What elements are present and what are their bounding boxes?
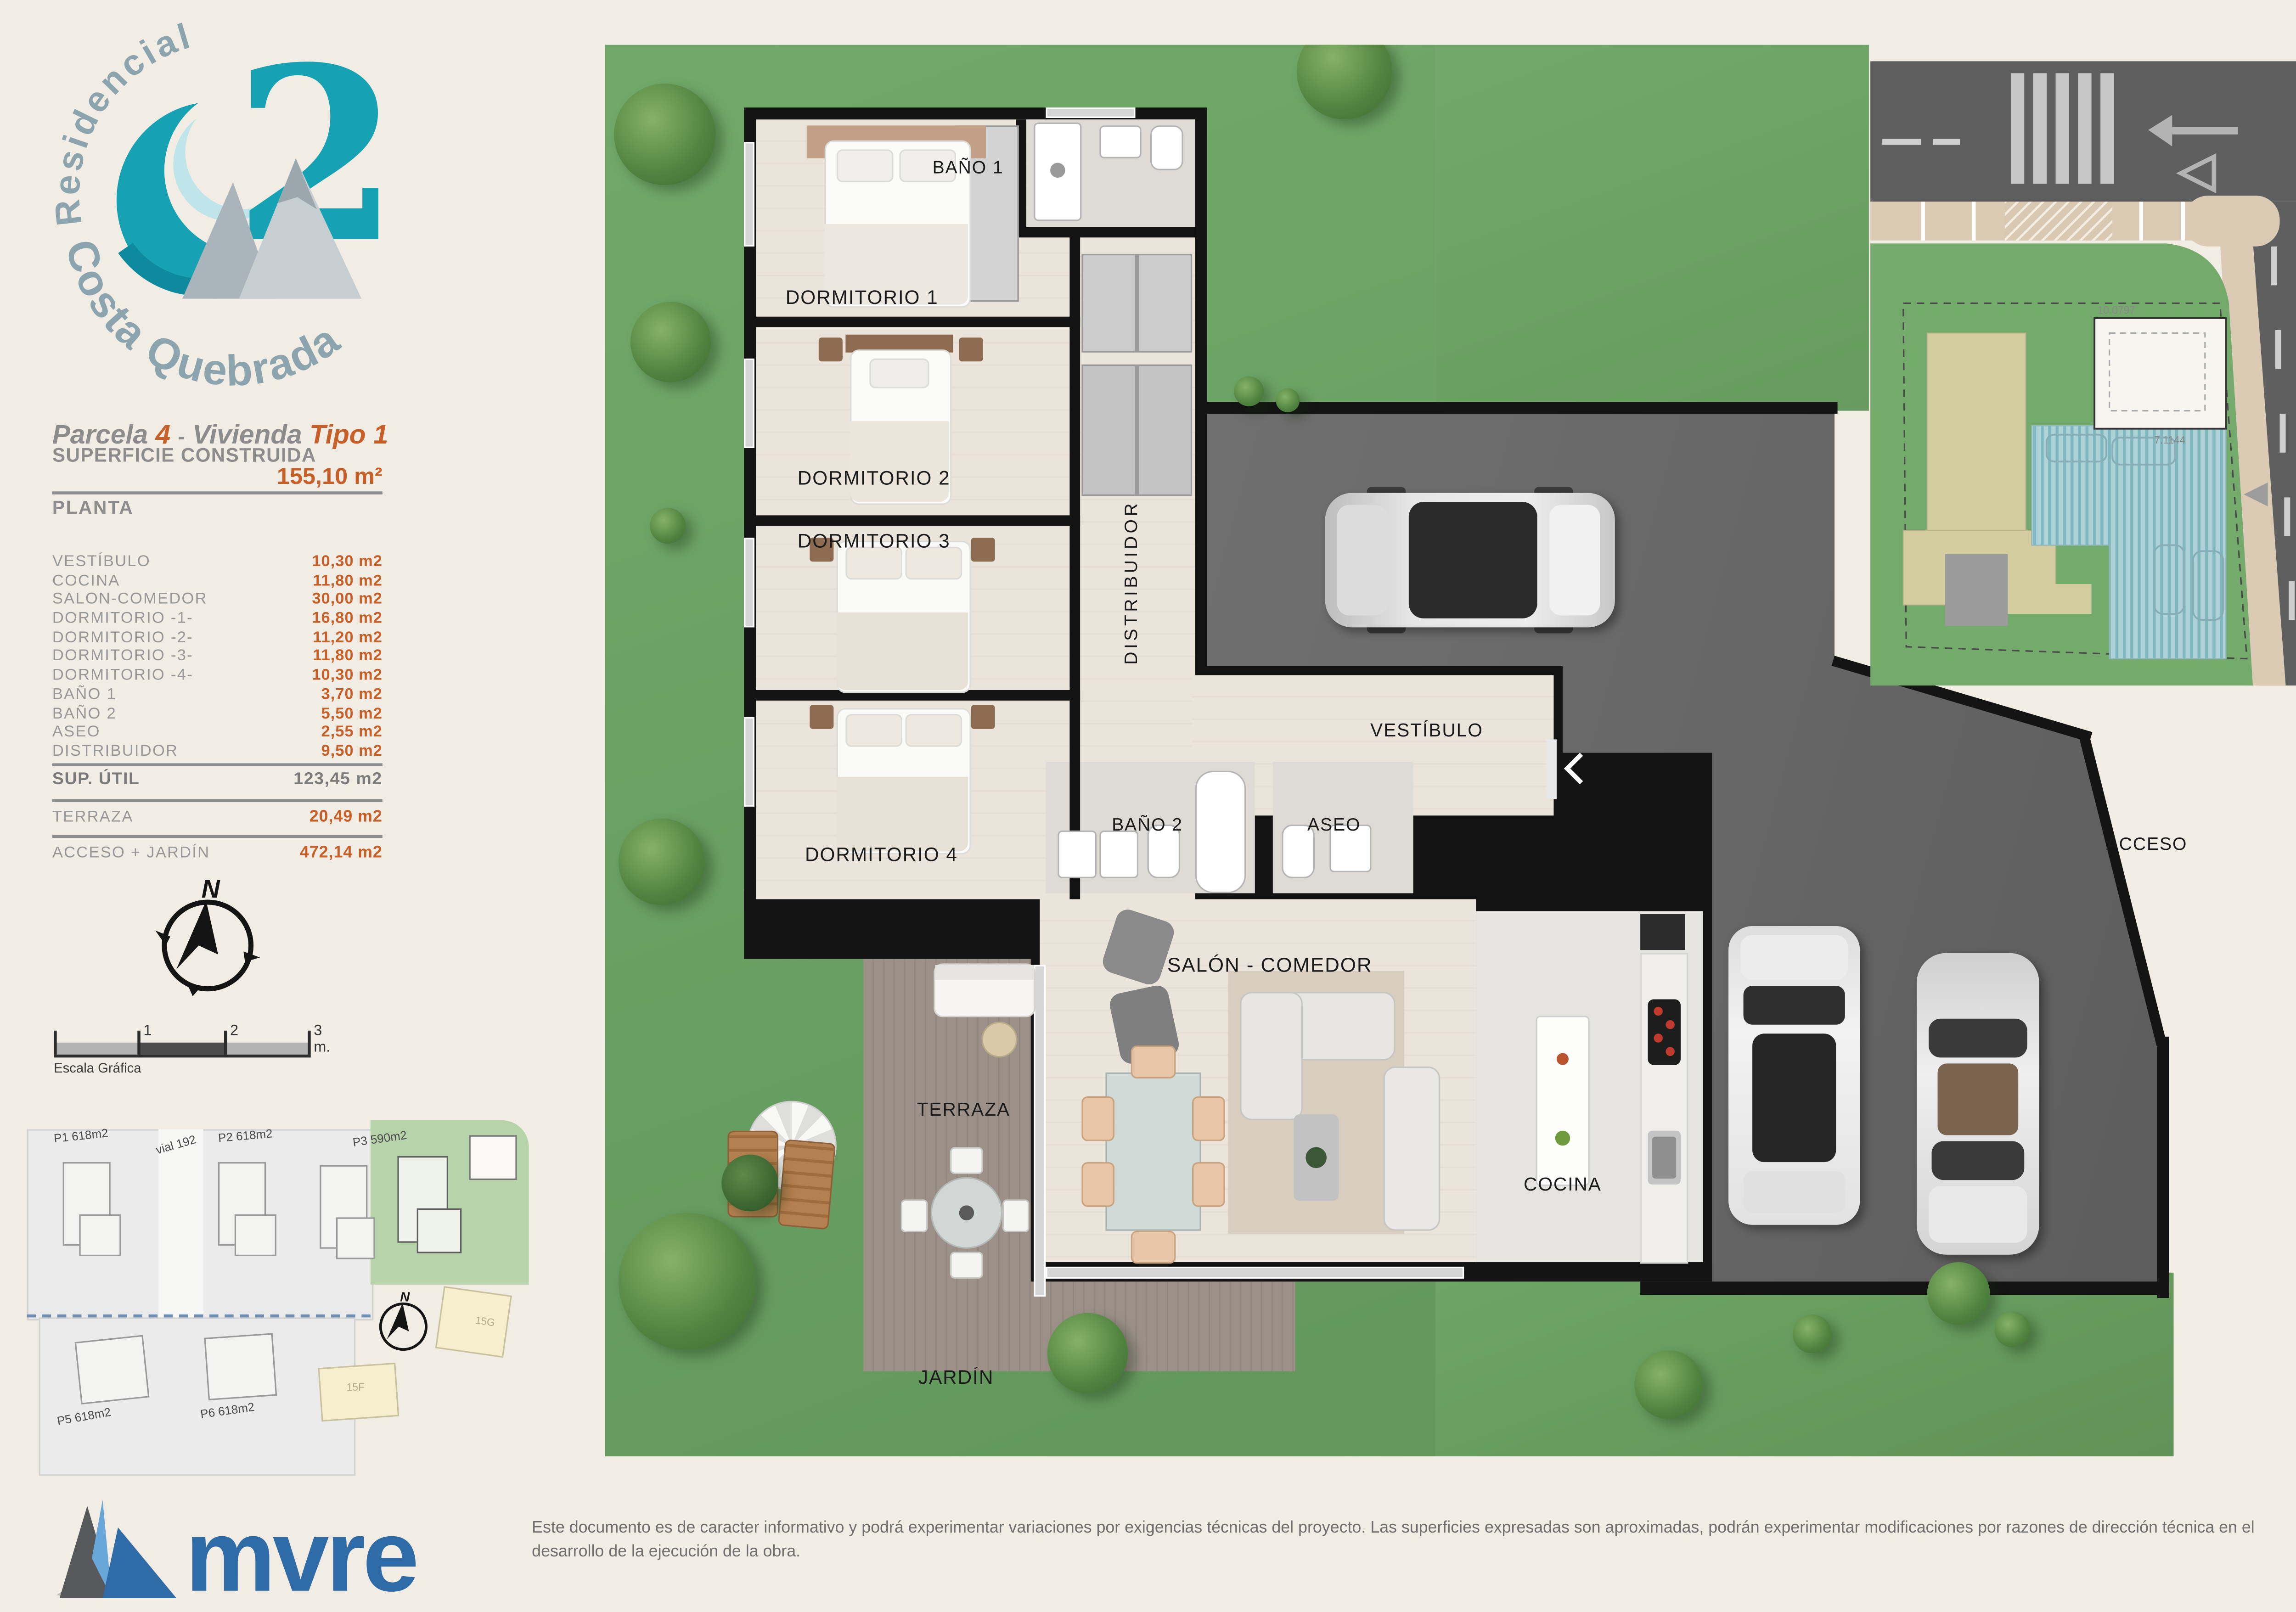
room-label: COCINA <box>52 572 120 590</box>
room-label-cocina: COCINA <box>1524 1174 1602 1195</box>
scale-label-3: 3 m. <box>314 1023 338 1056</box>
car-parked-sedan <box>1917 953 2039 1255</box>
outdoor-chair <box>901 1199 928 1232</box>
room-label-dorm4: DORMITORIO 4 <box>805 843 958 865</box>
window <box>1046 107 1135 118</box>
sup-util-label: SUP. ÚTIL <box>52 771 140 789</box>
acceso-jardin-value: 472,14 m2 <box>300 844 383 862</box>
window <box>744 538 754 627</box>
sofa-chaise <box>1240 992 1303 1120</box>
costa-quebrada-logo: 2 Residencial Costa Quebrada <box>39 6 416 388</box>
glass-wall-south <box>1046 1267 1464 1279</box>
sink <box>1099 831 1138 878</box>
terraza-row: TERRAZA 20,49 m2 <box>52 808 383 826</box>
pillow <box>869 359 929 388</box>
sun-lounger <box>777 1139 836 1230</box>
room-label: DORMITORIO -1- <box>52 610 193 628</box>
divider <box>52 799 383 803</box>
blanket <box>850 421 949 502</box>
closet <box>1081 365 1192 496</box>
tipo-label: Tipo <box>310 420 366 449</box>
inset-pool-area <box>2094 318 2226 429</box>
sidewalk-joint <box>2181 202 2185 241</box>
car-windshield <box>1744 986 1845 1025</box>
graphic-scale: 1 2 3 m. Escala Gráfica <box>54 1025 338 1078</box>
burner <box>1666 1047 1675 1056</box>
scale-label-2: 2 <box>230 1023 238 1040</box>
plate <box>1555 1131 1570 1146</box>
car-windshield <box>1929 1019 2027 1058</box>
loveseat-back <box>935 965 1034 980</box>
room-value: 11,20 m2 <box>313 629 383 646</box>
room-value: 10,30 m2 <box>312 666 382 684</box>
car-rear-glass <box>1932 1141 2025 1180</box>
vial-strip <box>158 1129 203 1317</box>
pillow <box>845 714 902 747</box>
coffee-table <box>1294 1114 1339 1201</box>
car-roof <box>1938 1063 2019 1135</box>
pool-inset <box>469 1135 517 1180</box>
sink <box>1099 125 1141 158</box>
room-label-dorm1: DORMITORIO 1 <box>786 286 939 309</box>
car-parked-top <box>1325 493 1615 628</box>
site-plan-compass: N <box>373 1287 433 1356</box>
burner <box>1654 1007 1663 1016</box>
sink <box>1058 831 1097 878</box>
sink-basin <box>1652 1137 1676 1179</box>
bush <box>1234 376 1264 406</box>
tipo-value: 1 <box>373 420 388 449</box>
room-label: VESTÍBULO <box>52 553 151 571</box>
outdoor-chair <box>1002 1199 1030 1232</box>
location-inset-map: 10.0797 7.1144 <box>1862 52 2296 685</box>
room-label: ASEO <box>52 723 101 741</box>
room-label-distribuidor: DISTRIBUIDOR <box>1120 500 1142 665</box>
closet <box>1081 254 1192 353</box>
blanket <box>837 612 968 690</box>
room-value: 10,30 m2 <box>312 553 382 571</box>
tree <box>1927 1262 1990 1325</box>
boundary-wall <box>2157 1037 2169 1298</box>
room-label-bano1: BAÑO 1 <box>933 157 1004 178</box>
window <box>744 359 754 448</box>
bush <box>650 508 686 544</box>
site-plan-minimap: 15G 15F N P1 618m2 vial 192 P2 618m2 P3 … <box>27 1111 547 1478</box>
kitchen-sink <box>1648 1131 1681 1185</box>
surface-value: 155,10 m² <box>52 465 383 492</box>
mvre-logo-text: mvre <box>185 1505 416 1607</box>
label-15f: 15F <box>347 1383 365 1394</box>
car-trunk <box>1744 1171 1845 1213</box>
scale-tick <box>54 1031 57 1055</box>
paved-apron <box>2005 202 2112 241</box>
inset-house-footprint <box>1927 333 2026 551</box>
room-label: SALON-COMEDOR <box>52 590 208 608</box>
outdoor-chair <box>950 1147 983 1174</box>
inset-dimension-bottom: 7.1144 <box>2154 434 2185 446</box>
drain <box>1050 163 1065 178</box>
room-value: 16,80 m2 <box>312 610 382 628</box>
area-label-acceso: ACCESO <box>2106 833 2188 854</box>
kitchen-cabinet <box>1640 914 1685 950</box>
room-value: 11,80 m2 <box>313 572 383 590</box>
room-label: BAÑO 2 <box>52 704 117 722</box>
mvre-mountain-blue <box>102 1528 176 1598</box>
room-label-dorm3: DORMITORIO 3 <box>798 529 951 552</box>
sidewalk-joint <box>1972 202 1975 241</box>
scale-tick <box>224 1031 227 1055</box>
house-footprint <box>74 1335 149 1405</box>
dining-chair <box>1192 1096 1225 1141</box>
house-south-wall <box>744 890 1049 959</box>
table-row: DORMITORIO -4-10,30 m2 <box>52 666 383 685</box>
brochure-page: 2 Residencial Costa Quebrada Parcela 4 -… <box>0 0 2296 1612</box>
scale-label-1: 1 <box>143 1023 152 1040</box>
car-hood <box>1740 935 1848 980</box>
scale-caption: Escala Gráfica <box>54 1061 141 1076</box>
terraza-label: TERRAZA <box>52 808 134 826</box>
house-footprint-wing <box>417 1208 462 1253</box>
table-row: DORMITORIO -1-16,80 m2 <box>52 610 383 629</box>
outdoor-chair <box>950 1252 983 1279</box>
room-value: 9,50 m2 <box>321 742 383 760</box>
corridor-wall <box>1069 236 1080 899</box>
room-label-bano2: BAÑO 2 <box>1112 814 1183 835</box>
table-row: ASEO2,55 m2 <box>52 723 383 742</box>
room-label-aseo: ASEO <box>1307 814 1361 835</box>
sidewalk-joint <box>1921 202 1925 241</box>
room-label-dorm2: DORMITORIO 2 <box>798 467 951 489</box>
pillow <box>905 714 962 747</box>
sup-util-row: SUP. ÚTIL 123,45 m2 <box>52 771 383 789</box>
divider <box>52 835 383 838</box>
car-hood <box>1549 505 1600 616</box>
nightstand <box>971 538 995 562</box>
plant <box>1306 1147 1327 1168</box>
boundary-wall <box>1640 1281 2169 1295</box>
tree <box>1634 1350 1703 1419</box>
pillow <box>837 149 894 182</box>
dining-chair <box>1081 1162 1114 1207</box>
house-footprint <box>320 1165 367 1249</box>
lane-dash <box>1933 139 1960 145</box>
nightstand <box>959 337 983 361</box>
neighbor-building-15g <box>435 1286 512 1358</box>
compass-n-label: N <box>400 1290 410 1305</box>
bush <box>1276 388 1300 412</box>
scale-bar-dark <box>139 1043 226 1055</box>
side-table <box>981 1022 1017 1057</box>
inset-patio <box>1945 554 2008 626</box>
tree <box>1047 1313 1128 1394</box>
garden-grass-top <box>1435 45 1868 411</box>
room-value: 2,55 m2 <box>321 723 383 741</box>
sidewalk-corner <box>2184 196 2279 247</box>
arrow-tail <box>2169 127 2238 135</box>
kitchen-counter <box>1640 953 1688 1264</box>
tree <box>1793 1314 1832 1354</box>
bed-dorm4 <box>837 702 968 851</box>
house-footprint <box>63 1162 111 1246</box>
interior-wall <box>1016 227 1195 238</box>
room-label-salon: SALÓN - COMEDOR <box>1167 954 1373 976</box>
house-footprint <box>204 1333 277 1400</box>
divider <box>52 763 383 766</box>
sofa <box>1384 1067 1441 1231</box>
table-row: BAÑO 25,50 m2 <box>52 704 383 723</box>
table-row: DORMITORIO -2-11,20 m2 <box>52 629 383 647</box>
table-row: BAÑO 13,70 m2 <box>52 685 383 704</box>
car-glass <box>1409 502 1537 618</box>
kitchen-island <box>1536 1016 1589 1186</box>
acceso-jardin-label: ACCESO + JARDÍN <box>52 844 210 862</box>
house-footprint-selected <box>397 1156 448 1243</box>
compass-n-label: N <box>202 875 220 903</box>
lane-dash <box>1882 139 1921 145</box>
house-footprint-wing <box>235 1214 276 1256</box>
planta-label: PLANTA <box>52 497 134 518</box>
sidewalk-joint <box>2139 202 2143 241</box>
room-value: 5,50 m2 <box>321 704 383 722</box>
outdoor-table <box>931 1177 1002 1249</box>
terraza-value: 20,49 m2 <box>310 808 383 826</box>
car-trunk <box>1337 505 1388 616</box>
shower-tray <box>1034 123 1081 221</box>
room-label-vestibulo: VESTÍBULO <box>1370 720 1483 741</box>
room-label-terraza: TERRAZA <box>917 1099 1010 1120</box>
table-row: SALON-COMEDOR30,00 m2 <box>52 590 383 609</box>
disclaimer-text: Este documento es de caracter informativ… <box>532 1517 2295 1565</box>
blanket <box>837 777 968 852</box>
surface-title: SUPERFICIE CONSTRUIDA <box>52 444 316 466</box>
house-footprint-wing <box>79 1214 121 1256</box>
room-value: 3,70 m2 <box>321 685 383 703</box>
room-label: DORMITORIO -4- <box>52 666 193 684</box>
mvre-logo-icon <box>52 1497 184 1598</box>
table-row: COCINA11,80 m2 <box>52 572 383 590</box>
nightstand <box>810 705 833 729</box>
table-row: DORMITORIO -3-11,80 m2 <box>52 647 383 666</box>
outdoor-loveseat <box>934 963 1035 1017</box>
bed-dorm3 <box>837 535 968 690</box>
room-label: DISTRIBUIDOR <box>52 742 178 760</box>
room-label: DORMITORIO -2- <box>52 629 193 646</box>
table-row: DISTRIBUIDOR9,50 m2 <box>52 742 383 761</box>
house-footprint-wing <box>336 1217 375 1259</box>
dining-table <box>1105 1073 1201 1231</box>
divider <box>52 491 383 494</box>
room-areas-table: VESTÍBULO10,30 m2 COCINA11,80 m2 SALON-C… <box>52 553 383 761</box>
north-compass: N <box>151 875 264 998</box>
dining-chair <box>1131 1045 1176 1078</box>
plate <box>1557 1053 1569 1065</box>
window <box>744 717 754 807</box>
cooktop <box>1648 999 1681 1065</box>
sup-util-value: 123,45 m2 <box>293 771 383 789</box>
car-roof-glass <box>1752 1033 1836 1162</box>
scale-baseline <box>54 1055 311 1058</box>
table-center <box>959 1205 974 1220</box>
interior-wall <box>756 317 1080 327</box>
glass-wall-terraza <box>1034 965 1046 1297</box>
area-label-jardin: JARDÍN <box>918 1366 994 1388</box>
car-parked-suv <box>1728 926 1860 1225</box>
burner <box>1654 1033 1663 1043</box>
bathtub <box>1195 771 1246 893</box>
window <box>744 142 754 247</box>
scale-tick <box>137 1031 141 1055</box>
tree <box>1994 1311 2030 1347</box>
acceso-jardin-row: ACCESO + JARDÍN 472,14 m2 <box>52 844 383 862</box>
burner <box>1666 1020 1675 1029</box>
nightstand <box>971 705 995 729</box>
room-label: BAÑO 1 <box>52 685 117 703</box>
dining-chair <box>1131 1231 1176 1264</box>
garden-grass-bottom <box>1435 1273 2173 1456</box>
nightstand <box>819 337 843 361</box>
scale-tick <box>308 1031 311 1055</box>
toilet <box>1150 125 1183 170</box>
tree <box>619 819 705 905</box>
room-value: 30,00 m2 <box>312 590 382 608</box>
car-trunk <box>1929 1186 2027 1243</box>
tree <box>630 302 711 382</box>
dining-chair <box>1081 1096 1114 1141</box>
boundary-dashed-line <box>27 1314 371 1318</box>
dining-chair <box>1192 1162 1225 1207</box>
tree <box>619 1213 756 1350</box>
table-row: VESTÍBULO10,30 m2 <box>52 553 383 572</box>
room-value: 11,80 m2 <box>313 647 383 665</box>
inset-house-footprint-wing <box>2005 584 2092 614</box>
entrance-door <box>1546 739 1557 799</box>
inset-dimension-top: 10.0797 <box>2098 304 2135 316</box>
tree <box>614 84 715 185</box>
room-label: DORMITORIO -3- <box>52 647 193 665</box>
house-footprint <box>218 1162 266 1246</box>
tree <box>721 1155 778 1212</box>
interior-wall <box>756 515 1080 526</box>
